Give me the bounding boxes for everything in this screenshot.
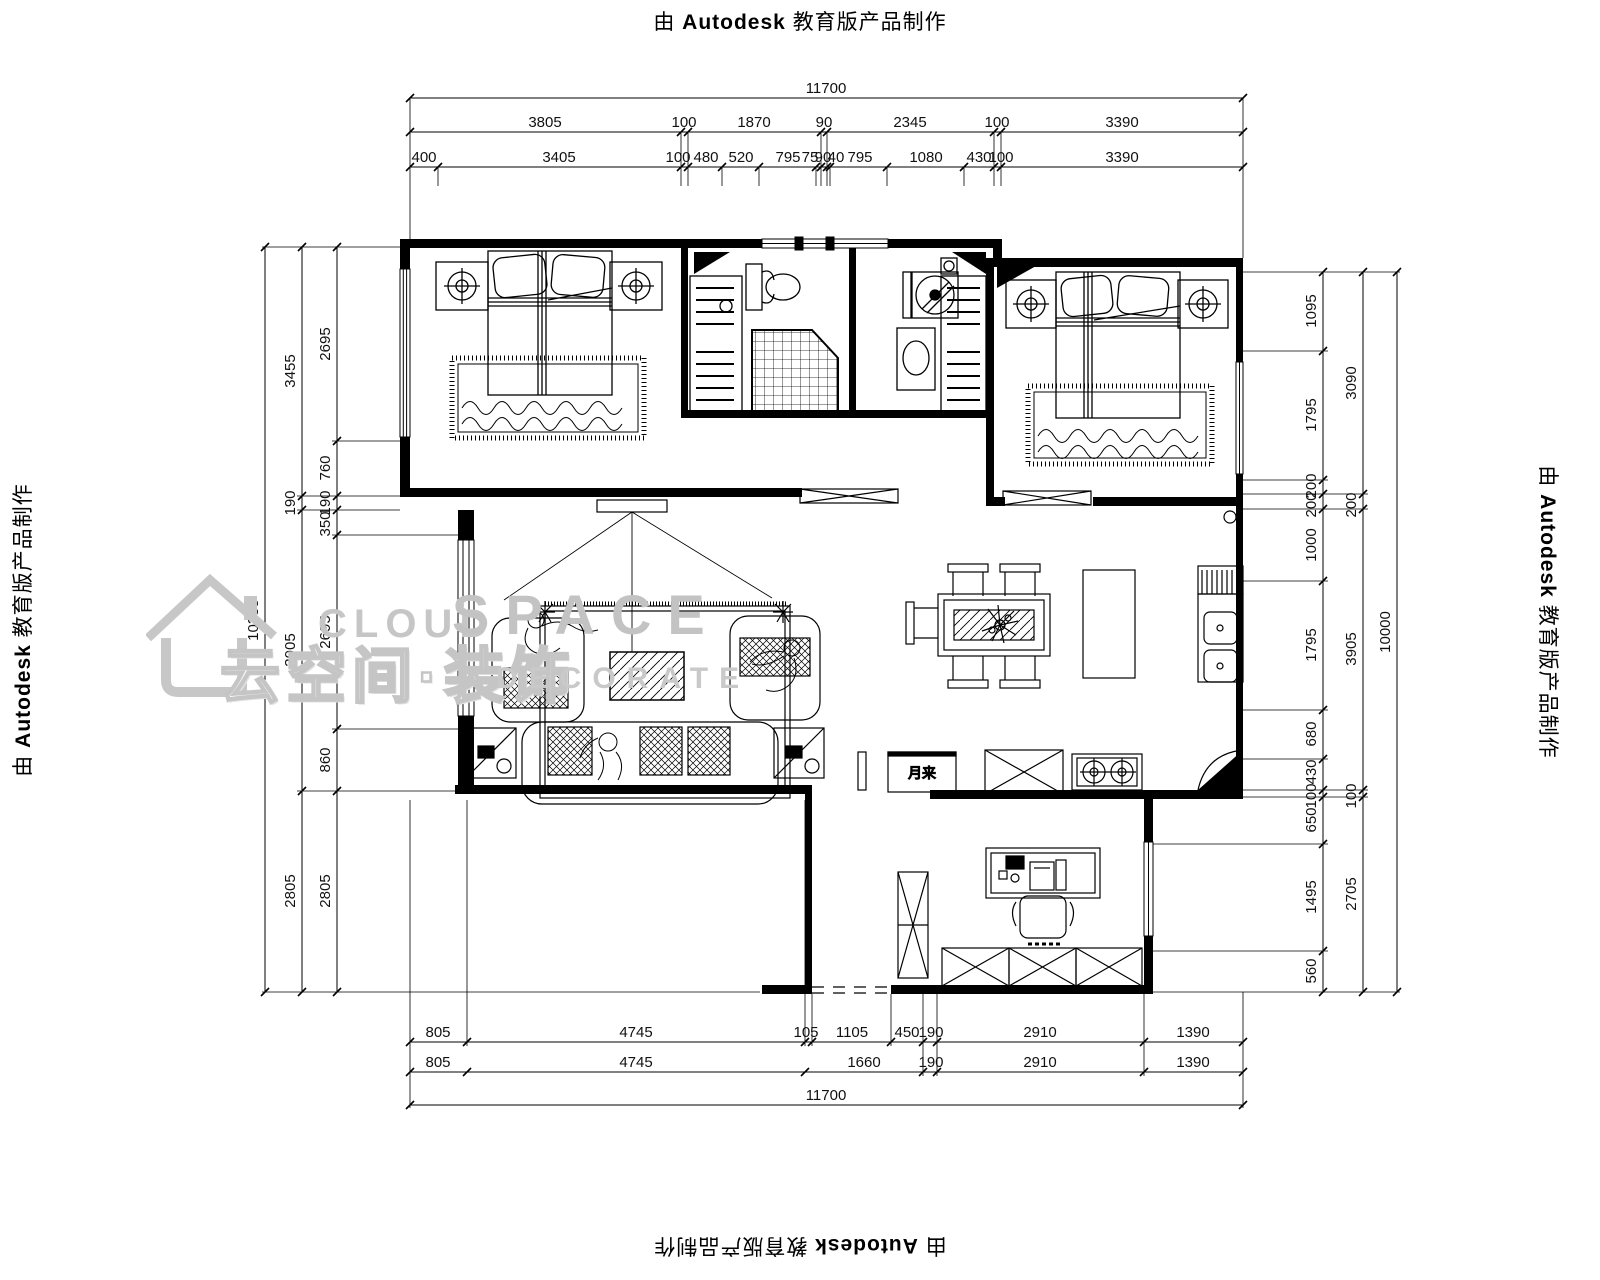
dim-label: 3905	[1343, 632, 1360, 665]
gas-stove	[1072, 754, 1142, 790]
side-table-lamp	[774, 728, 824, 778]
bathroom	[746, 264, 838, 412]
wardrobe-left	[690, 276, 742, 416]
window-livingroom-left	[458, 540, 474, 716]
window-bath-top	[762, 237, 888, 250]
floorplan-drawing: 月来	[0, 0, 1600, 1280]
wardrobe-x-cabinets	[942, 948, 1142, 986]
dim-label: 190	[918, 1054, 943, 1071]
sliding-door	[1003, 491, 1091, 505]
dim-label: 10355	[245, 599, 262, 641]
washing-machine	[897, 328, 935, 390]
dim-label: 1105	[836, 1024, 868, 1041]
dim-label: 3390	[1105, 114, 1138, 131]
dim-label: 11700	[806, 80, 847, 97]
dim-label: 680	[1303, 721, 1320, 746]
dining-chair	[1000, 564, 1040, 596]
dining-chair	[906, 602, 938, 644]
dining-chair	[948, 656, 988, 688]
window-study-right	[1144, 842, 1153, 936]
dim-label: 3390	[1105, 149, 1138, 166]
rug	[452, 358, 644, 438]
dim-label: 2910	[1023, 1054, 1056, 1071]
dim-label: 4745	[619, 1054, 652, 1071]
dim-label: 1000	[1303, 528, 1320, 561]
dim-label: 100	[1343, 783, 1360, 808]
dim-label: 805	[425, 1024, 450, 1041]
dim-label: 805	[425, 1054, 450, 1071]
dim-label: 2805	[282, 874, 299, 907]
dim-label: 4745	[619, 1024, 652, 1041]
dim-label: 100	[671, 114, 696, 131]
kitchen-counter-row: 月来	[858, 750, 1243, 794]
dim-label: 1795	[1303, 628, 1320, 661]
shower	[752, 330, 838, 412]
kitchen-island	[1083, 570, 1135, 678]
dim-label: 2345	[893, 114, 926, 131]
nightstand	[1178, 280, 1228, 328]
dim-label: 650	[1303, 807, 1320, 832]
dim-label: 350	[317, 511, 334, 536]
dim-label: 560	[1303, 958, 1320, 983]
dim-label: 3455	[282, 354, 299, 387]
dim-label: 400	[411, 149, 436, 166]
dim-label: 2695	[317, 327, 334, 360]
dim-label: 760	[317, 455, 334, 480]
living-room	[466, 500, 824, 804]
dining-table	[938, 594, 1050, 656]
wall-corner-fill	[997, 266, 1036, 288]
doors	[800, 489, 1091, 993]
dining-room	[906, 511, 1243, 688]
study-room	[898, 848, 1142, 986]
dim-label: 1390	[1176, 1054, 1209, 1071]
toilet	[746, 264, 800, 310]
dim-label: 795	[775, 149, 800, 166]
dim-label: 200	[1303, 492, 1320, 517]
dim-label: 100	[988, 149, 1013, 166]
dim-label: 100	[984, 114, 1009, 131]
armchair	[492, 618, 584, 722]
dim-label: 1095	[1303, 294, 1320, 327]
dim-label: 100	[665, 149, 690, 166]
entry-door-opening	[812, 987, 891, 993]
nightstand	[436, 262, 488, 310]
kitchen-corner-fill	[1198, 750, 1243, 790]
dim-label: 3805	[528, 114, 561, 131]
nightstand	[610, 262, 662, 310]
dim-label: 10000	[1377, 611, 1394, 653]
dim-label: 90	[816, 114, 833, 131]
armchair	[730, 616, 820, 720]
dim-label: 1495	[1303, 880, 1320, 913]
dim-label: 480	[693, 149, 718, 166]
desk-chair	[1013, 896, 1074, 944]
dim-label: 1390	[1176, 1024, 1209, 1041]
dim-label: 11700	[806, 1087, 847, 1104]
dim-label: 3090	[1343, 366, 1360, 399]
wall-corner-fill	[694, 252, 730, 274]
nightstand	[1006, 280, 1056, 328]
dim-label: 190	[918, 1024, 943, 1041]
desk	[986, 848, 1100, 898]
dim-label: 200	[1343, 492, 1360, 517]
dining-chair	[1000, 656, 1040, 688]
dim-label: 100	[1303, 783, 1320, 808]
wardrobe-right	[941, 276, 986, 416]
wall-fixture	[1224, 511, 1236, 523]
dim-label: 520	[728, 149, 753, 166]
bedroom2	[1006, 272, 1228, 464]
dining-chair	[948, 564, 988, 596]
dim-label: 40	[828, 149, 845, 166]
floorplan-page: 由 Autodesk 教育版产品制作 由 Autodesk 教育版产品制作 由 …	[0, 0, 1600, 1280]
dim-label: 1795	[1303, 398, 1320, 431]
dim-label: 795	[847, 149, 872, 166]
dim-label: 2705	[1343, 877, 1360, 910]
shoe-cabinet	[898, 872, 928, 978]
double-bed	[488, 251, 612, 395]
refrigerator	[985, 750, 1063, 794]
dim-label: 2910	[1023, 1024, 1056, 1041]
dim-label: 2695	[317, 615, 334, 648]
dim-label: 1660	[847, 1054, 880, 1071]
dim-label: 1870	[737, 114, 770, 131]
dim-label: 190	[282, 490, 299, 515]
coffee-table	[610, 652, 684, 700]
sliding-door	[800, 489, 898, 503]
kitchen-cabinet-label: 月来	[908, 765, 936, 781]
dim-label: 3905	[282, 633, 299, 666]
dim-label: 3405	[542, 149, 575, 166]
dim-label: 2805	[317, 874, 334, 907]
double-bed	[1056, 272, 1180, 418]
dim-label: 430	[1303, 759, 1320, 784]
wall-tv	[504, 500, 772, 652]
dim-label: 860	[317, 747, 334, 772]
window-bedroom1-left	[400, 269, 410, 437]
dim-label: 450	[894, 1024, 919, 1041]
dim-label: 105	[793, 1024, 818, 1041]
window-bedroom2-right	[1236, 362, 1243, 474]
bedroom1	[436, 251, 662, 438]
dim-label: 1080	[909, 149, 942, 166]
